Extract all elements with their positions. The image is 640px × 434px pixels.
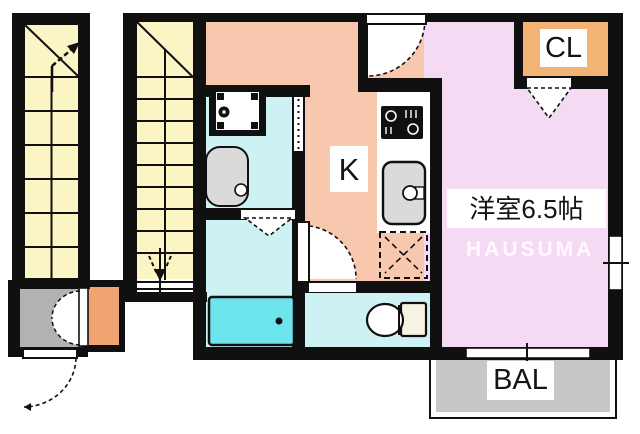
wall-midstair-left bbox=[123, 13, 137, 302]
balcony-label: BAL bbox=[487, 361, 554, 400]
toilet-room-floor bbox=[303, 291, 432, 349]
wall-bath-top bbox=[200, 208, 305, 220]
closet-label-text: CL bbox=[545, 34, 582, 63]
wall-leftstair-left bbox=[12, 13, 25, 283]
entrance-cabinet-top bbox=[88, 287, 119, 345]
balcony-label-text: BAL bbox=[493, 366, 548, 395]
western-room-label-text: 洋室6.5帖 bbox=[469, 196, 583, 222]
wall-porch-bottom bbox=[8, 347, 88, 357]
washroom-floor bbox=[206, 95, 294, 210]
wall-bottom bbox=[193, 347, 623, 360]
kitchen-counter bbox=[377, 92, 432, 233]
wall-leftstair-bottom bbox=[12, 278, 90, 289]
kitchen-label: K bbox=[330, 146, 368, 192]
left-staircase-floor bbox=[22, 22, 80, 282]
stair-landing bbox=[137, 279, 193, 293]
wall-kitchen-mainroom bbox=[430, 78, 442, 360]
wall-leftstair-right bbox=[78, 13, 90, 287]
floor-plan: K CL 洋室6.5帖 BAL HAUSUMA bbox=[0, 0, 640, 434]
closet-label: CL bbox=[540, 29, 587, 67]
entrance-cabinet bbox=[82, 280, 125, 352]
wall-midstair-bottom bbox=[123, 292, 207, 302]
wall-entry-horizontal bbox=[358, 78, 432, 92]
entrance-porch-floor bbox=[18, 286, 84, 349]
kitchen-label-text: K bbox=[339, 154, 360, 185]
wall-midstair-right bbox=[193, 13, 206, 360]
wall-porch-left bbox=[8, 280, 20, 352]
western-room-label: 洋室6.5帖 bbox=[447, 189, 606, 228]
middle-staircase-floor bbox=[135, 20, 195, 282]
wall-right bbox=[608, 13, 623, 360]
brand-watermark: HAUSUMA bbox=[466, 238, 594, 262]
entrance-door bbox=[23, 349, 77, 411]
brand-watermark-text: HAUSUMA bbox=[466, 238, 594, 261]
wall-toilet-top bbox=[303, 281, 440, 293]
wall-wet-right bbox=[292, 85, 305, 360]
wall-entry-stub bbox=[358, 13, 368, 80]
wall-closet-bottom bbox=[514, 76, 608, 89]
bathroom-floor bbox=[206, 216, 294, 349]
